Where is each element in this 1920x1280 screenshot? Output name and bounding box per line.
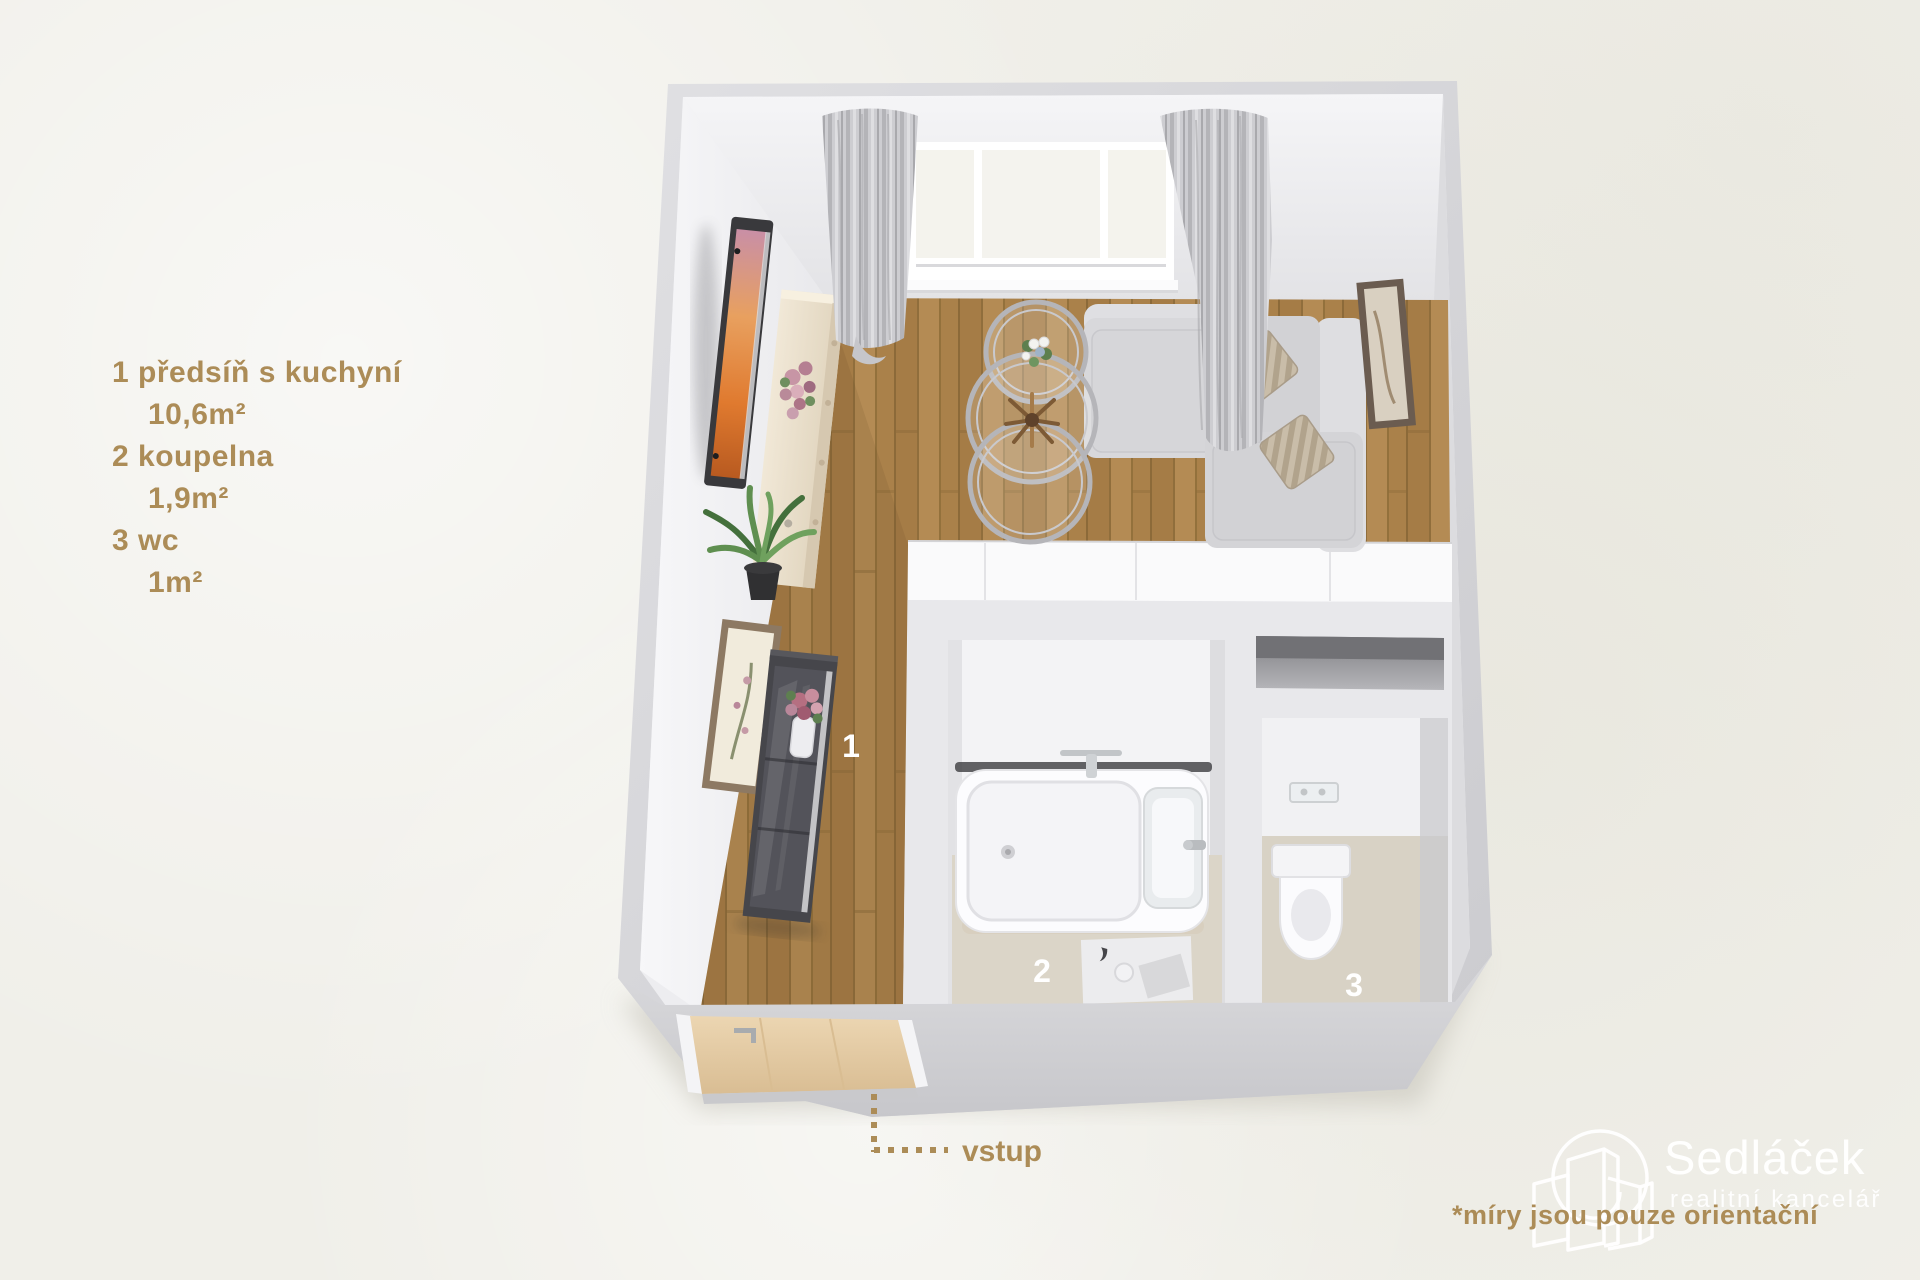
wc-room <box>1262 718 1448 1006</box>
flush-plate <box>1290 783 1338 802</box>
legend-row-3: 3 wc <box>112 520 402 562</box>
window <box>902 142 1178 293</box>
bathtub <box>956 750 1208 934</box>
legend-room-area: 1m² <box>112 562 402 604</box>
brand-logo-icon <box>1524 1122 1674 1262</box>
left-curtain <box>822 109 918 365</box>
vstup-label: vstup <box>962 1135 1042 1168</box>
legend-room-number: 2 <box>112 440 129 473</box>
jar <box>1115 963 1134 982</box>
brand-name: Sedláček <box>1664 1130 1865 1185</box>
coffee-tables <box>968 302 1096 542</box>
entrance-door <box>676 1014 928 1104</box>
legend-row-1: 1 předsíň s kuchyní <box>112 352 402 394</box>
floor-plan: 1 2 3 vstup <box>0 0 1920 1280</box>
room-label-2: 2 <box>1033 953 1051 989</box>
disclaimer: *míry jsou pouze orientační <box>1452 1200 1818 1231</box>
kitchen-counter-divider <box>908 541 1452 602</box>
bathroom <box>948 640 1225 1006</box>
wall-art <box>1360 283 1412 426</box>
legend-room-label: koupelna <box>138 440 274 473</box>
legend-room-number: 3 <box>112 524 129 557</box>
floor-plan-page: 1 2 3 vstup 1 předsíň s kuchyní 10,6m² 2… <box>0 0 1920 1280</box>
legend: 1 předsíň s kuchyní 10,6m² 2 koupelna 1,… <box>112 352 402 604</box>
room-label-3: 3 <box>1345 967 1363 1003</box>
bathtub-sink <box>1144 788 1206 908</box>
legend-room-number: 1 <box>112 356 129 389</box>
legend-room-area: 10,6m² <box>112 394 402 436</box>
legend-row-2: 2 koupelna <box>112 436 402 478</box>
legend-room-label: předsíň s kuchyní <box>138 356 402 389</box>
niche <box>1256 636 1444 690</box>
room-label-1: 1 <box>842 728 860 764</box>
bath-mat <box>1081 936 1193 1004</box>
legend-room-label: wc <box>138 524 179 557</box>
legend-room-area: 1,9m² <box>112 478 402 520</box>
